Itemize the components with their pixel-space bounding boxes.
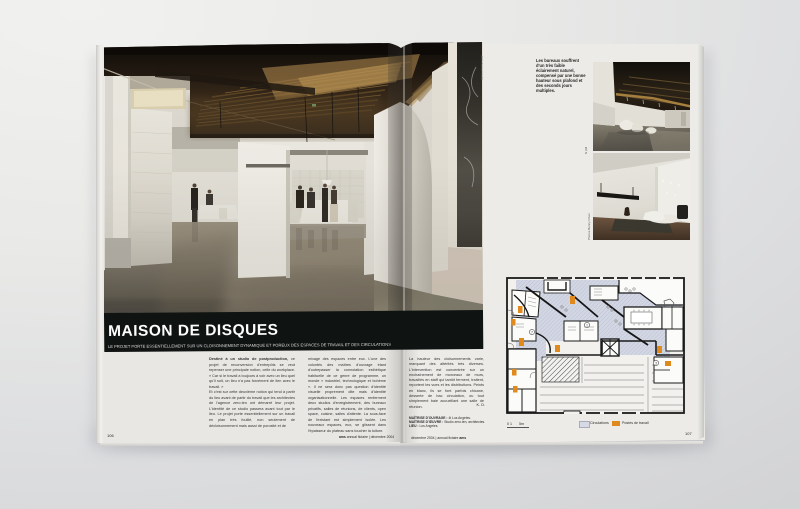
svg-text:1: 1 <box>586 324 588 328</box>
svg-text:7: 7 <box>531 331 533 335</box>
svg-text:3: 3 <box>655 362 657 366</box>
